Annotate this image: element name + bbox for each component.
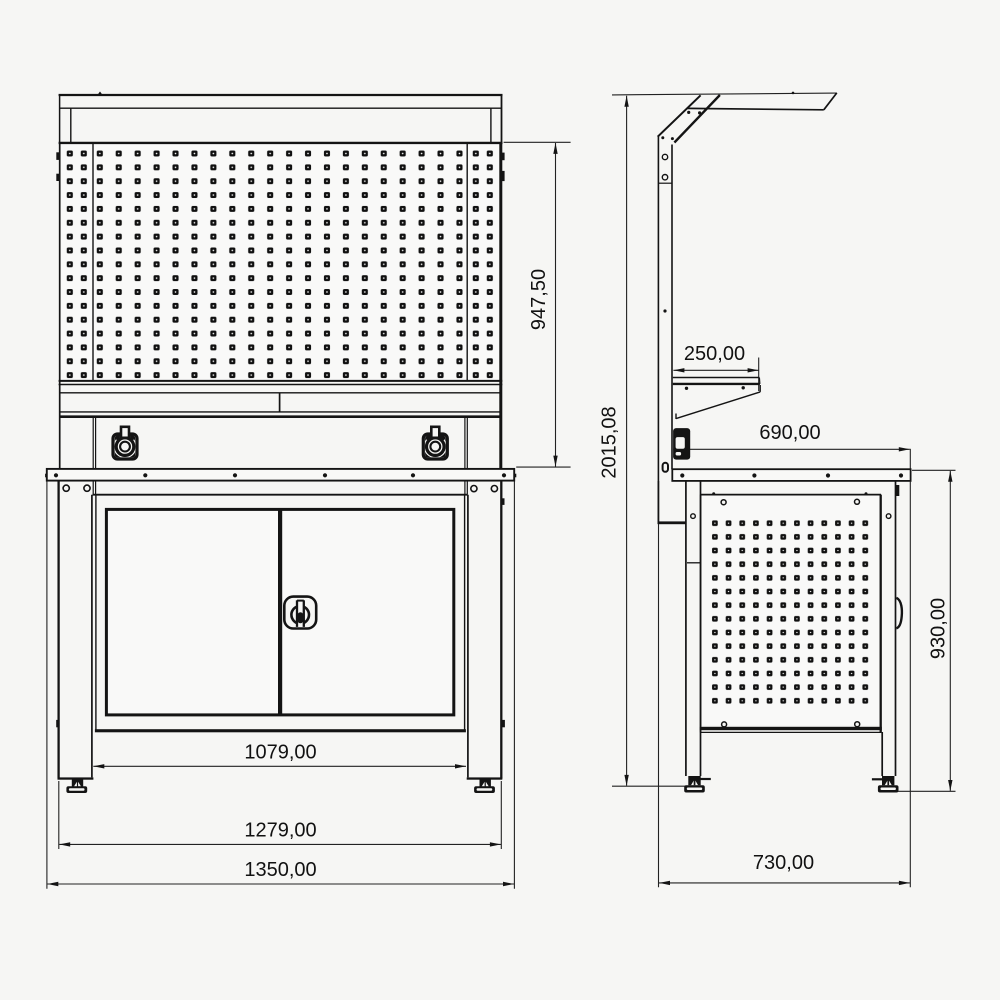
svg-text:2015,08: 2015,08 <box>599 406 621 478</box>
svg-text:947,50: 947,50 <box>528 269 550 330</box>
svg-text:690,00: 690,00 <box>759 422 820 444</box>
svg-text:250,00: 250,00 <box>684 343 745 365</box>
svg-text:1279,00: 1279,00 <box>244 820 316 842</box>
svg-text:1350,00: 1350,00 <box>244 859 316 881</box>
svg-text:930,00: 930,00 <box>928 598 950 659</box>
svg-text:1079,00: 1079,00 <box>244 742 316 764</box>
svg-text:730,00: 730,00 <box>753 852 814 874</box>
